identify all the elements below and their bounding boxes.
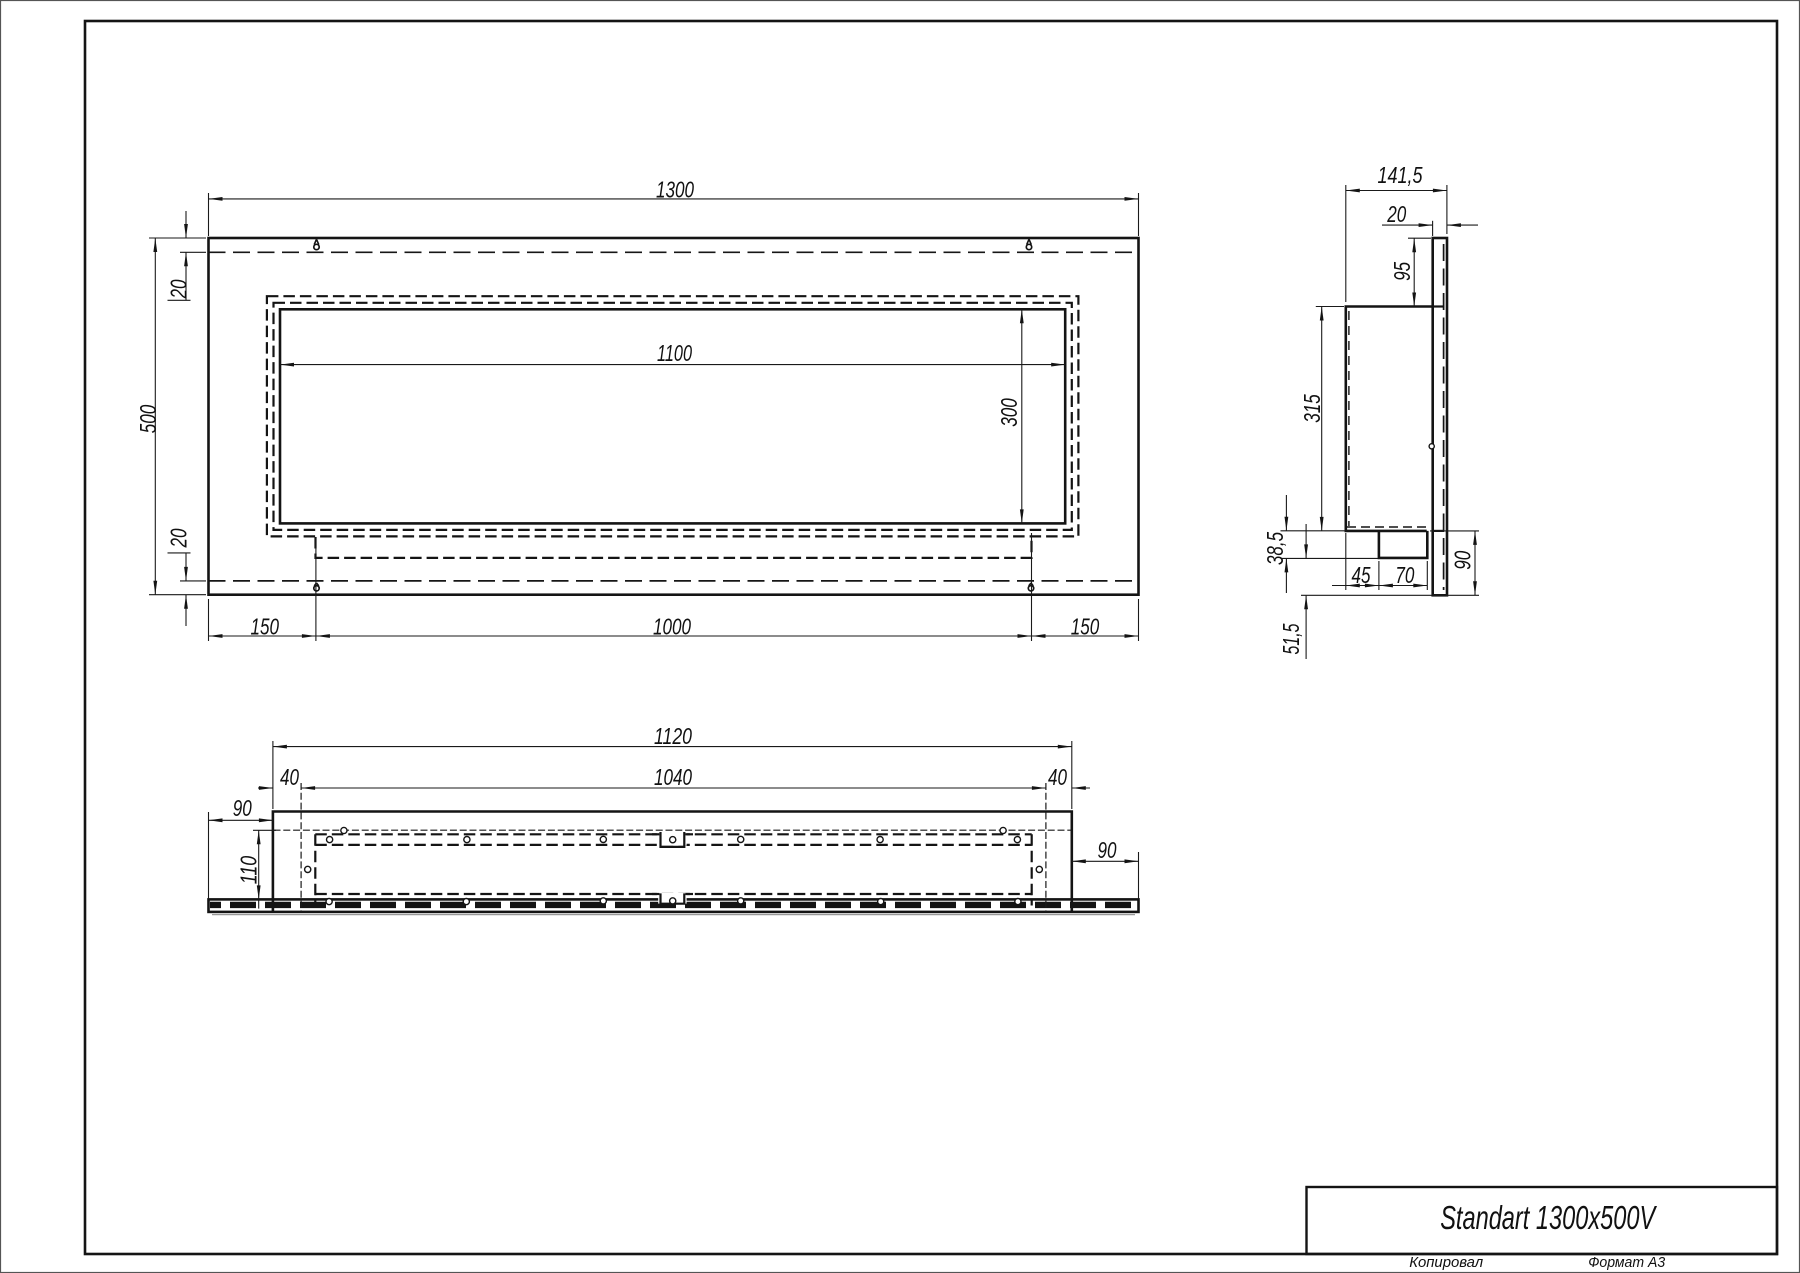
svg-text:20: 20 [166,279,192,299]
svg-text:500: 500 [135,405,161,434]
svg-text:300: 300 [996,398,1022,427]
svg-text:70: 70 [1395,562,1414,588]
svg-text:1000: 1000 [653,613,691,639]
svg-text:20: 20 [166,528,192,548]
svg-text:95: 95 [1389,262,1415,281]
svg-text:150: 150 [250,613,279,639]
svg-text:1120: 1120 [654,723,692,749]
svg-text:90: 90 [1449,551,1475,570]
svg-text:38,5: 38,5 [1262,532,1288,565]
svg-text:Standart 1300x500V: Standart 1300x500V [1440,1199,1657,1236]
svg-text:20: 20 [1387,201,1407,227]
svg-text:110: 110 [236,856,262,885]
svg-text:315: 315 [1299,394,1325,423]
svg-text:90: 90 [1098,837,1117,863]
svg-text:40: 40 [1048,764,1067,790]
svg-text:1040: 1040 [654,764,692,790]
svg-text:Формат А3: Формат А3 [1588,1254,1666,1271]
svg-text:1300: 1300 [656,176,694,202]
svg-text:45: 45 [1352,562,1371,588]
svg-text:Копировал: Копировал [1409,1254,1484,1271]
svg-text:51,5: 51,5 [1278,623,1304,654]
svg-text:141,5: 141,5 [1378,162,1423,188]
svg-text:90: 90 [233,795,252,821]
svg-text:1100: 1100 [657,340,692,366]
svg-text:150: 150 [1071,613,1100,639]
svg-text:40: 40 [280,764,299,790]
